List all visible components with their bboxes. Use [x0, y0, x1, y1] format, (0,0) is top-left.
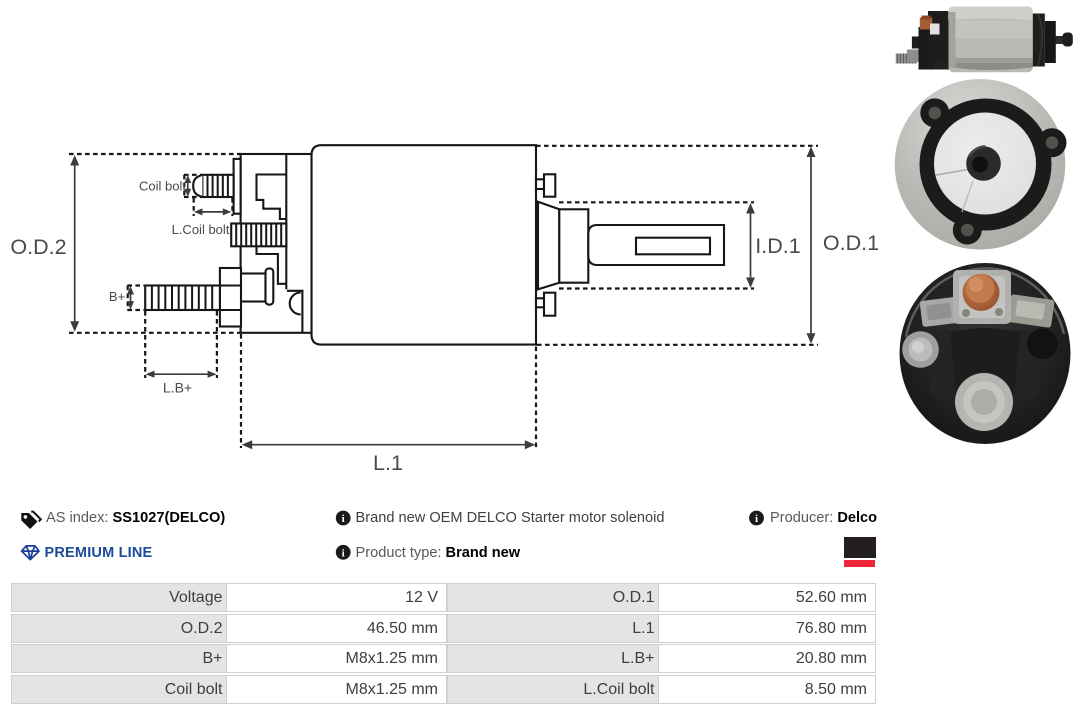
svg-text:i: i: [342, 513, 345, 525]
svg-text:L.B+: L.B+: [163, 380, 192, 396]
svg-text:L.Coil bolt: L.Coil bolt: [172, 222, 230, 237]
svg-text:O.D.1: O.D.1: [823, 231, 879, 255]
svg-text:I.D.1: I.D.1: [755, 234, 800, 258]
svg-text:i: i: [342, 547, 345, 559]
svg-text:B+: B+: [109, 289, 125, 304]
svg-text:L.1: L.1: [373, 451, 403, 475]
svg-text:i: i: [755, 513, 758, 525]
svg-text:O.D.2: O.D.2: [10, 235, 66, 259]
svg-text:Coil bolt: Coil bolt: [139, 179, 186, 194]
